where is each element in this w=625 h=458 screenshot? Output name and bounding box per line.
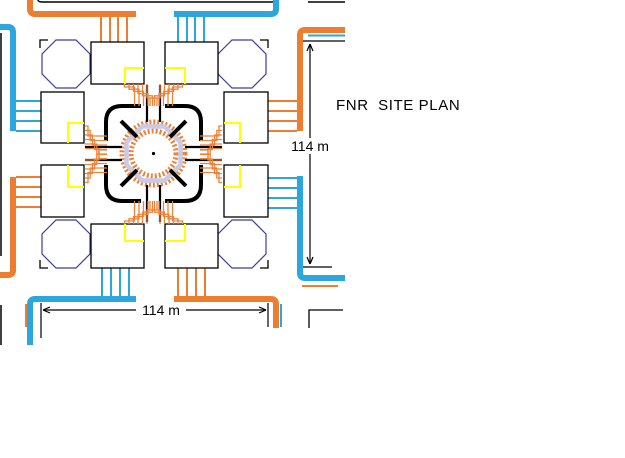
building-right-lower [224,165,268,217]
6 [173,201,183,224]
dim-label-horizontal: 114 m [136,302,186,318]
building-left-upper [41,92,84,143]
octagon-building-bottom-left [42,220,90,268]
octagon-building-top-left [42,40,90,88]
building-top-left [91,42,144,84]
building-bottom-right [165,224,218,268]
road-orange-bottom-right [174,299,276,328]
building-top-right [165,42,218,84]
core-interior [135,135,172,172]
core-diagonal-top-left [121,121,137,137]
dim-label-vertical-text: 114 m [291,138,329,154]
boundary-corner-bottom-right [260,260,268,268]
adjacent-site-corner [309,310,343,328]
6 [173,84,183,106]
6 [200,173,222,183]
boundary-corner-bottom-left [40,260,48,268]
top-road-line [38,0,276,2]
boundary-corner-top-right [260,40,268,48]
road-blue-bottom-left [30,299,136,345]
road-blue-right-lower [300,176,345,278]
building-left-lower [41,165,84,217]
dim-label-vertical: 114 m [286,138,334,154]
site-plan-svg: 114 m 114 m FNR SITE PLAN [0,0,625,458]
boundary-corner-top-left [40,40,48,48]
building-right-upper [224,92,268,143]
plan-title: FNR SITE PLAN [336,97,460,114]
core-center-dot [152,152,155,155]
road-orange-right-upper [300,30,345,131]
building-bottom-left [91,224,144,268]
diagram-layers [0,0,345,345]
core-diagonal-bottom-left [121,170,137,186]
dim-label-horizontal-text: 114 m [142,302,180,318]
road-blue-left-upper [0,27,13,131]
road-orange-left-lower [0,177,13,275]
site-plan-canvas: 114 m 114 m FNR SITE PLAN [0,0,625,458]
octagon-building-bottom-right [218,220,266,268]
octagon-building-top-right [218,40,266,88]
6 [85,173,107,183]
